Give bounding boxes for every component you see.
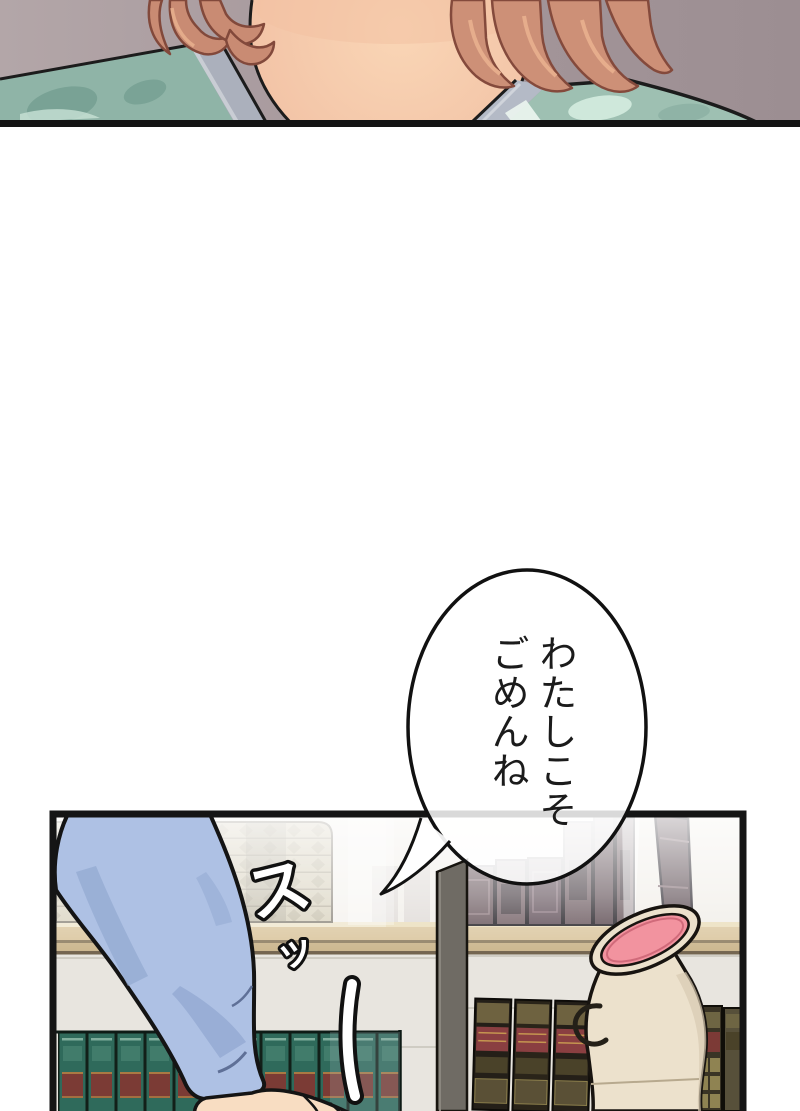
sfx-dash bbox=[347, 984, 355, 1096]
top-panel-border bbox=[0, 120, 800, 127]
bookshelf-post bbox=[437, 860, 467, 1111]
top-panel bbox=[0, 0, 800, 130]
ornate-books-left bbox=[472, 999, 591, 1111]
glass-streak-2 bbox=[348, 815, 394, 925]
manga-page: ス ッ わたしこそ ごめんね bbox=[0, 0, 800, 1111]
manga-artwork: ス ッ bbox=[0, 0, 800, 1111]
bottom-panel: ス ッ bbox=[55, 810, 743, 1111]
bubble-text: わたしこそ ごめんね bbox=[474, 634, 578, 844]
bubble-line-1: わたしこそ bbox=[530, 634, 578, 844]
bubble-line-2: ごめんね bbox=[482, 634, 530, 844]
